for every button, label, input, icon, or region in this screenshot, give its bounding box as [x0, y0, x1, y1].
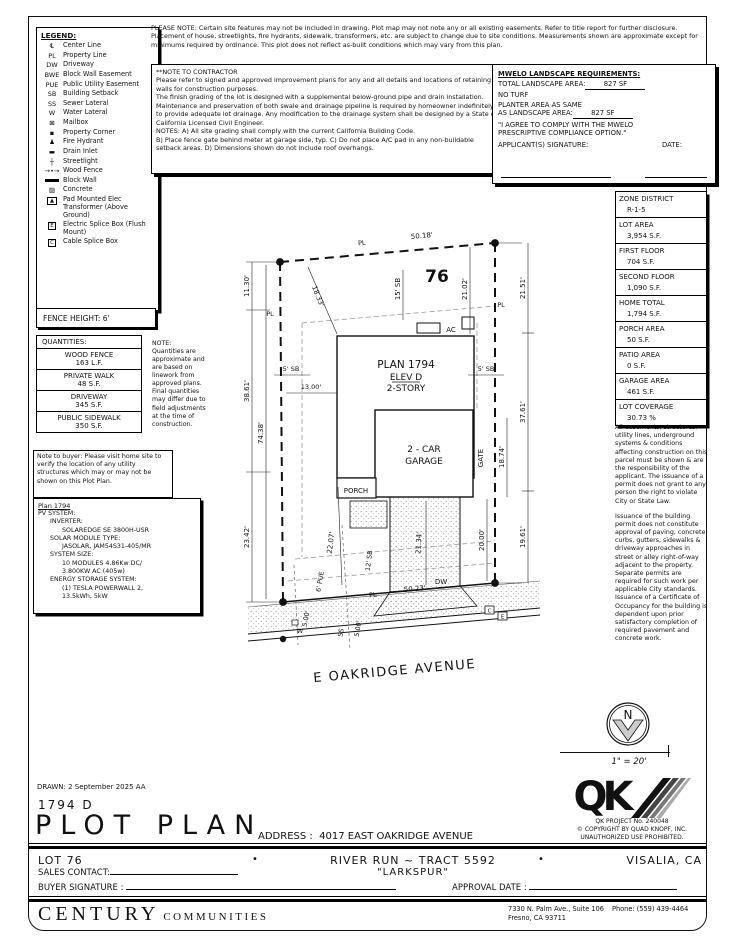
property-line-icon: PL	[41, 52, 63, 60]
qk-logo-block: QK QK PROJECT No. 240048 © COPYRIGHT BY …	[556, 776, 708, 842]
street: E OAKRIDGE AVENUE	[248, 581, 540, 686]
mwelo-planter-value: 827 SF	[573, 109, 633, 118]
pv-system-box: Plan 1794 PV SYSTEM: INVERTER: SOLAREDGE…	[33, 498, 201, 614]
address-label: ADDRESS :	[258, 831, 313, 842]
zone-row: FIRST FLOOR704 S.F.	[615, 243, 707, 270]
gate-label: GATE	[477, 449, 485, 467]
footer-lot: LOT 76	[38, 854, 83, 867]
mwelo-box: MWELO LANDSCAPE REQUIREMENTS: TOTAL LAND…	[492, 64, 716, 184]
fire-hydrant-icon	[280, 636, 286, 642]
drawn-line: DRAWN: 2 September 2025 AA	[37, 783, 146, 791]
quantity-row: DRIVEWAY345 S.F.	[36, 390, 142, 412]
dim-inner-right-bot: 20.00'	[478, 529, 486, 551]
center-line-icon: ℄	[41, 42, 63, 50]
address-value: 4017 EAST OAKRIDGE AVENUE	[319, 831, 473, 842]
qk-logo-stripes	[629, 776, 691, 818]
zone-row: SECOND FLOOR1,090 S.F.	[615, 269, 707, 296]
sheet-title: PLOT PLAN	[35, 810, 263, 841]
block-wall-easement-code: BWE	[41, 71, 63, 79]
water-code: W	[41, 109, 63, 117]
drain-inlet-icon: ▬	[41, 148, 63, 156]
mwelo-no-turf: NO TURF	[498, 90, 710, 100]
please-note: PLEASE NOTE: Certain site features may n…	[151, 24, 703, 49]
dim-drive-len: 21.34'	[414, 532, 423, 554]
date-line	[645, 177, 707, 178]
approval-date-row: APPROVAL DATE :	[452, 883, 677, 893]
north-label: N	[624, 708, 633, 722]
scale-tick	[668, 745, 669, 757]
dim-diag-left: 18.33'	[310, 285, 326, 308]
dim-right-mid: 37.61'	[519, 401, 527, 423]
brand-communities: COMMUNITIES	[163, 911, 268, 923]
zone-row: HOME TOTAL1,794 S.F.	[615, 295, 707, 322]
dim-right-top: 21.51'	[519, 277, 527, 299]
zone-row: PORCH AREA50 S.F.	[615, 321, 707, 348]
buyer-signature-line	[126, 889, 396, 890]
water-meter-icon	[292, 620, 298, 625]
qk-logo: QK	[574, 777, 629, 817]
zone-row: PATIO AREA0 S.F.	[615, 347, 707, 374]
dim-inner-right-mid: 18.74'	[498, 446, 506, 468]
zone-row: ZONE DISTRICTR-1-5	[615, 191, 707, 218]
scale-label: 1" = 20'	[588, 757, 670, 767]
applicant-signature-line	[501, 177, 611, 178]
legend-title: LEGEND:	[41, 31, 154, 40]
street-name: E OAKRIDGE AVENUE	[313, 657, 477, 686]
private-walk	[350, 501, 387, 528]
dim-front-offset: 13.00'	[301, 383, 322, 391]
footer-bullet: •	[252, 854, 258, 865]
dim-left-bot: 23.42'	[243, 526, 251, 548]
legend-box: LEGEND: ℄Center Line PLProperty Line DWD…	[36, 27, 159, 311]
divider	[28, 846, 706, 849]
ac-unit	[462, 317, 474, 329]
zone-row: LOT COVERAGE30.73 %	[615, 399, 707, 426]
easement-paragraph-1: All easements, structures, utility lines…	[615, 424, 708, 506]
pl-label: PL	[358, 239, 367, 248]
dim-pue: 6' PUE	[314, 571, 325, 593]
concrete-icon: ▨	[41, 186, 63, 194]
qk-copyright: © COPYRIGHT BY QUAD KNOPF, INC.	[556, 826, 708, 834]
mwelo-total: TOTAL LANDSCAPE AREA:827 SF	[498, 79, 710, 90]
ac-pad	[417, 323, 440, 333]
driveway-code: DW	[41, 61, 63, 69]
cable-splice-icon: C	[41, 238, 63, 247]
divider	[28, 899, 706, 902]
dim-rear-sb: 15' SB	[394, 278, 402, 301]
dim-front-sb: 12' SB	[364, 550, 374, 572]
block-wall-icon	[41, 177, 63, 185]
pue-code: PUE	[41, 81, 63, 89]
sales-contact-row: SALES CONTACT:	[38, 868, 238, 878]
garage-label-1: 2 - CAR	[407, 445, 440, 455]
footer-bullet: •	[538, 854, 544, 865]
divider	[28, 896, 706, 897]
brand-century: CENTURY	[38, 903, 159, 925]
plan-label: PLAN 1794	[377, 359, 435, 371]
builder-phone: Phone: (559) 439-4464	[612, 905, 688, 914]
dim-left-top: 11.30'	[243, 275, 251, 297]
sales-contact-line	[110, 874, 238, 875]
quantities-table: QUANTITIES: WOOD FENCE163 L.F. PRIVATE W…	[36, 336, 142, 433]
pl-label: PL	[369, 591, 378, 600]
dim-right-bot: 19.61'	[519, 526, 527, 548]
easement-notes: All easements, structures, utility lines…	[615, 424, 708, 643]
dim-side-sb-right: 5' SB	[478, 365, 495, 373]
story-label: 2-STORY	[387, 384, 426, 394]
dim-lat-b: 5.00'	[353, 620, 364, 638]
footer-city: VISALIA, CA	[606, 854, 702, 867]
quantities-title: QUANTITIES:	[36, 335, 142, 349]
buyer-note-box: Note to buyer: Please visit home site to…	[33, 450, 173, 498]
property-corner-icon: ▪	[41, 129, 63, 137]
lot-number: 76	[425, 267, 449, 287]
dim-walk: 22.07'	[326, 531, 337, 554]
dim-side-sb-left: 5' SB	[283, 365, 300, 373]
builder-address: 7330 N. Palm Ave., Suite 106Phone: (559)…	[508, 905, 700, 923]
elev-label: ELEV D	[390, 373, 422, 383]
porch-label: PORCH	[344, 487, 368, 495]
svg-text:C: C	[488, 609, 492, 615]
wood-fence-icon: →•→	[41, 167, 63, 175]
footer-tract: RIVER RUN ~ TRACT 5592	[290, 854, 536, 867]
zone-row: LOT AREA3,954 S.F.	[615, 217, 707, 244]
ac-label: AC	[446, 326, 456, 334]
quantity-row: PUBLIC SIDEWALK350 S.F.	[36, 411, 142, 433]
transformer-icon: ▲	[41, 196, 63, 205]
sewer-code: SS	[41, 100, 63, 108]
plot-plan-sheet: LEGEND: ℄Center Line PLProperty Line DWD…	[0, 0, 732, 948]
mwelo-total-value: 827 SF	[585, 79, 645, 90]
quantity-row: PRIVATE WALK48 S.F.	[36, 369, 142, 391]
fire-hydrant-icon: ♟	[41, 138, 63, 146]
easement-paragraph-2: Issuance of the building permit does not…	[615, 513, 708, 644]
divider	[28, 843, 706, 844]
house	[337, 317, 474, 498]
contractor-note-box: **NOTE TO CONTRACTOR Please refer to sig…	[151, 64, 503, 174]
dim-rear-pl: 50.18'	[411, 231, 434, 241]
dim-inner-right-top: 21.02'	[461, 278, 469, 300]
site-plan-drawing: E OAKRIDGE AVENUE	[190, 225, 610, 695]
qk-unauthorized: UNAUTHORIZED USE PROHIBITED.	[556, 834, 708, 842]
electric-splice-icon: E	[41, 221, 63, 230]
mwelo-title: MWELO LANDSCAPE REQUIREMENTS:	[498, 69, 710, 79]
driveway	[390, 497, 460, 592]
zone-row: GARAGE AREA461 S.F.	[615, 373, 707, 400]
scale-bar	[560, 752, 670, 753]
quantity-row: WOOD FENCE163 L.F.	[36, 348, 142, 370]
address-line: ADDRESS : 4017 EAST OAKRIDGE AVENUE	[258, 831, 473, 842]
contractor-note-title: **NOTE TO CONTRACTOR	[156, 68, 498, 76]
pl-label: PL	[266, 310, 274, 318]
pv-title: Plan 1794	[38, 502, 196, 510]
setback-code: SB	[41, 90, 63, 98]
fence-height-box: FENCE HEIGHT: 6'	[36, 308, 156, 328]
zone-table: ZONE DISTRICTR-1-5 LOT AREA3,954 S.F. FI…	[615, 192, 707, 426]
driveway-label: DW	[435, 578, 447, 586]
mwelo-signature-row: APPLICANT(S) SIGNATURE:DATE:	[498, 140, 710, 150]
mwelo-planter: AS LANDSCAPE AREA:827 SF	[498, 109, 710, 118]
north-arrow: N	[588, 695, 670, 755]
sewer-lateral-label: SS	[336, 628, 345, 638]
footer-community: "LARKSPUR"	[290, 867, 536, 878]
pl-label: PL	[497, 301, 505, 309]
svg-text:E: E	[501, 615, 505, 621]
streetlight-icon: ┼	[41, 158, 63, 166]
mailbox-icon: ⊠	[41, 119, 63, 127]
builder-brand: CENTURY COMMUNITIES	[38, 903, 268, 926]
garage-label-2: GARAGE	[405, 457, 443, 467]
dim-left-mid: 38.61'	[243, 380, 251, 402]
dim-left-inner: 74.38'	[257, 422, 265, 444]
approval-date-line	[529, 889, 677, 890]
water-lateral-label: W	[297, 627, 304, 635]
buyer-signature-row: BUYER SIGNATURE :	[38, 883, 396, 893]
